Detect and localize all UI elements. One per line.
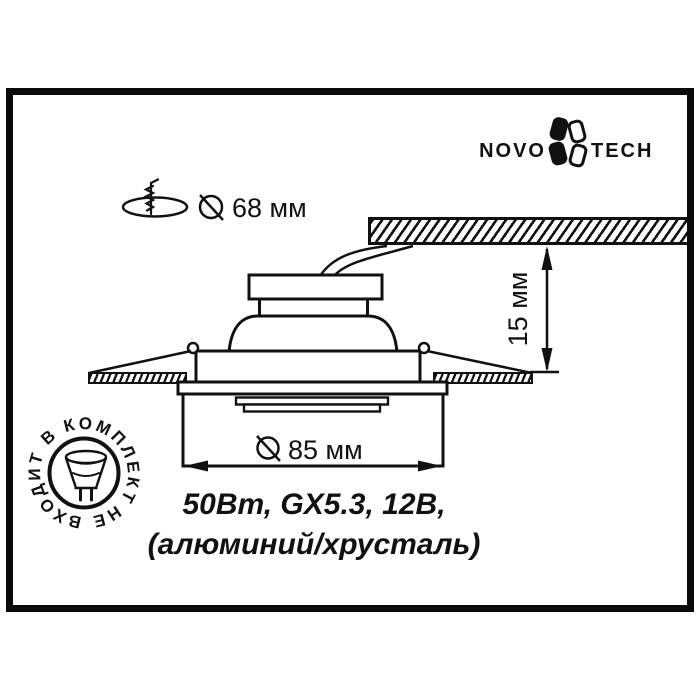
glass-diffuser-bottom (244, 405, 380, 412)
spec-captions: 50Вт, GX5.3, 12В, (алюминий/хрусталь) (148, 488, 481, 561)
brand-logo: NOVO TECH (479, 118, 653, 167)
spec-line-power: 50Вт, GX5.3, 12В, (182, 488, 445, 521)
cutout-callout: 68 мм (123, 180, 307, 224)
fixture-bell (229, 316, 397, 352)
spring-clip-right (427, 351, 532, 373)
arrow-up-icon (542, 246, 553, 270)
lamp-holder-block (249, 275, 382, 299)
lamp-not-included-stamp: НЕ ВХОДИТ В КОМПЛЕКТ (25, 414, 143, 532)
brand-flower-icon (549, 118, 587, 167)
diameter-icon (200, 195, 223, 220)
spec-line-materials: (алюминий/хрусталь) (148, 528, 481, 561)
trim-flange (178, 382, 447, 394)
brand-text-right: TECH (591, 140, 653, 162)
technical-drawing: NOVO TECH 68 мм (0, 0, 700, 700)
visible-diameter-label: 85 мм (288, 435, 363, 465)
protrusion-height-label: 15 мм (503, 272, 533, 347)
spring-clip-left (89, 351, 191, 373)
wire (320, 246, 413, 276)
fixture-neck (260, 299, 368, 316)
height-dimension: 15 мм (503, 246, 559, 372)
spec-sheet: NOVO TECH 68 мм (0, 0, 700, 700)
trim-housing (196, 351, 420, 382)
brand-text-left: NOVO (479, 140, 546, 162)
arrow-down-icon (542, 348, 553, 372)
cutout-diameter-label: 68 мм (232, 193, 307, 223)
stamp-ring (50, 439, 119, 508)
